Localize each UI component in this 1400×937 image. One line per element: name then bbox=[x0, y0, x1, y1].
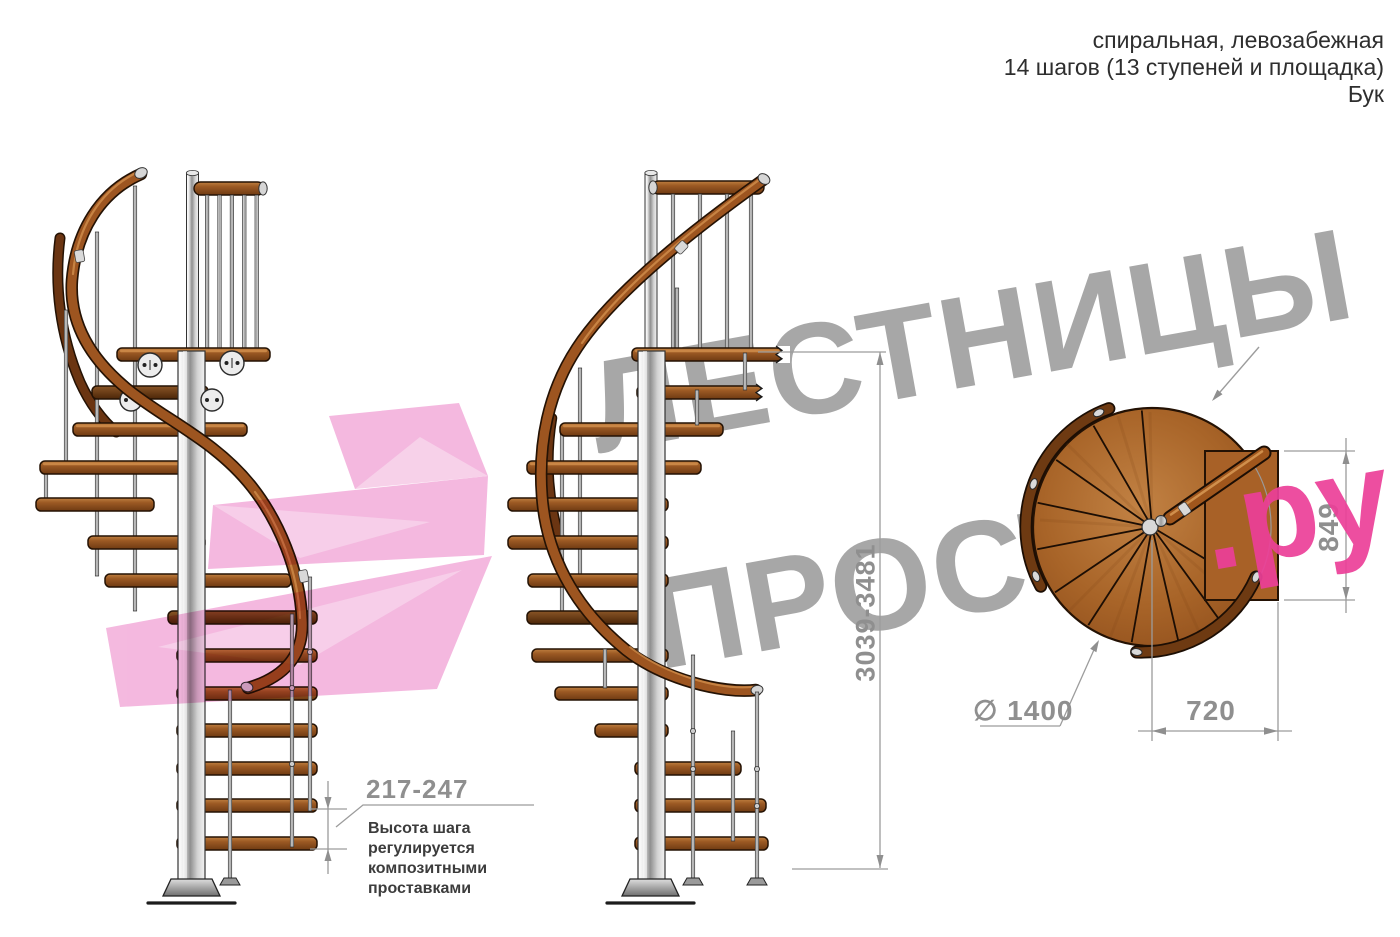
pink-arrows-decoration bbox=[0, 0, 1400, 937]
technical-drawing-page: ЛЕСТНИЦЫПРОСТО.ру bbox=[0, 0, 1400, 937]
